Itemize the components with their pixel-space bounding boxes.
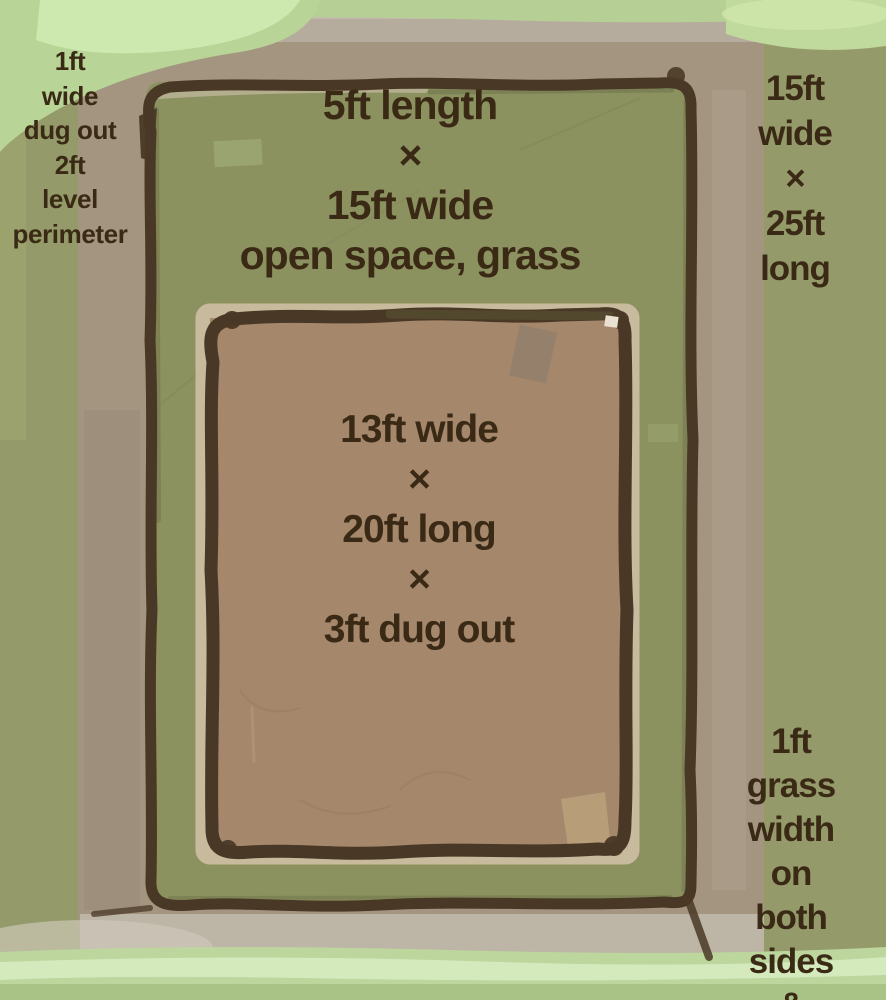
dugout-dimensions-note: 13ft wide × 20ft long × 3ft dug out: [324, 405, 514, 655]
path-left-shade: [84, 410, 140, 910]
corner-white-chip: [604, 315, 618, 328]
outline-olive-tint: [390, 314, 610, 316]
grass-shadow-fringe: [170, 897, 670, 898]
perimeter-note: 1ft wide dug out 2ft level perimeter: [13, 44, 128, 251]
soil-scratch: [252, 708, 254, 762]
outline-corner-blob: [604, 836, 624, 856]
outline-corner-blob: [219, 840, 237, 858]
grass-margin-note: 1ft grass width on both sides & bottom: [735, 720, 848, 1000]
overall-dimensions-note: 15ft wide × 25ft long: [750, 66, 841, 291]
annotated-yard-sketch: 1ft wide dug out 2ft level perimeter 5ft…: [0, 0, 886, 1000]
light-grass-patch: [648, 424, 678, 442]
outline-corner-blob: [667, 67, 685, 85]
open-space-note: 5ft length × 15ft wide open space, grass: [240, 80, 581, 280]
outline-corner-blob: [223, 311, 241, 329]
